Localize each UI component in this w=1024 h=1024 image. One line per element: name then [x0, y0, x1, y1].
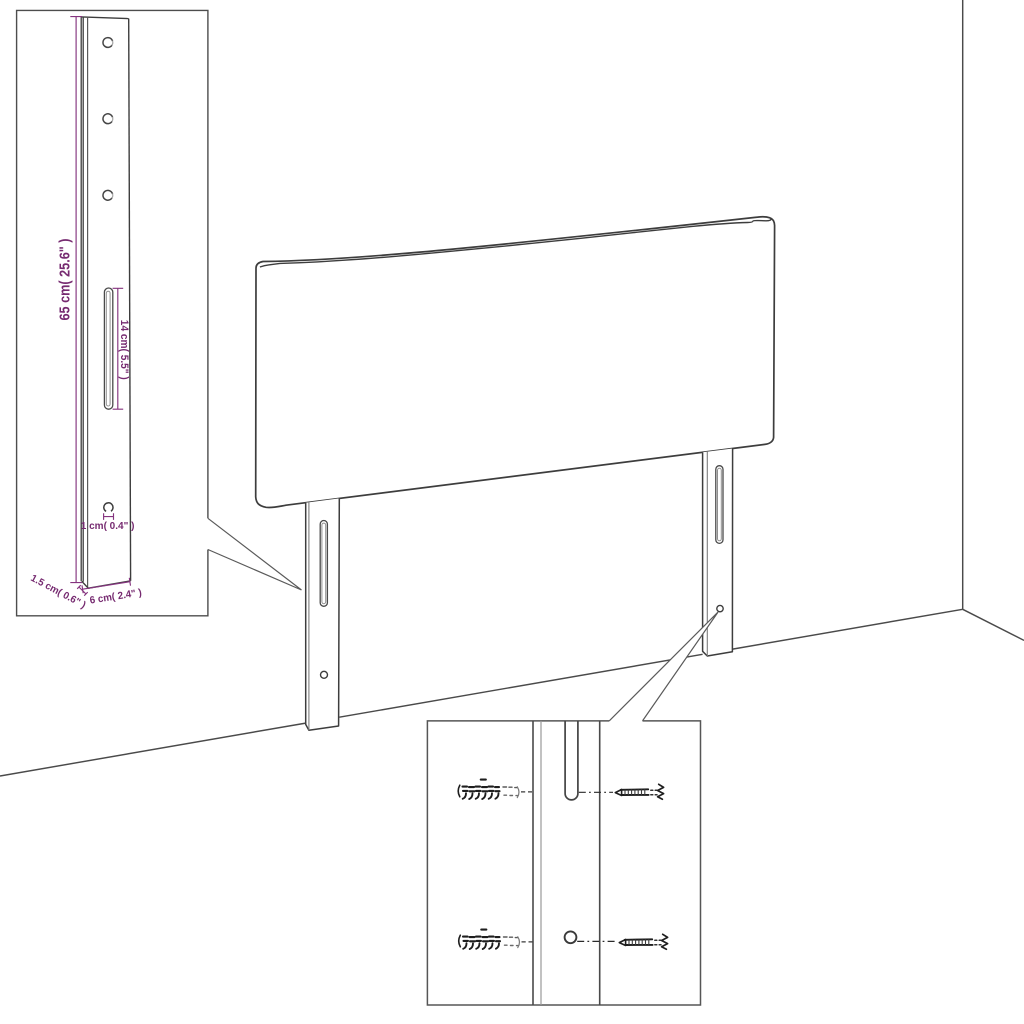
svg-text:14 cm( 5.5" ): 14 cm( 5.5" ) — [118, 320, 130, 380]
svg-text:1 cm( 0.4" ): 1 cm( 0.4" ) — [81, 521, 135, 532]
svg-text:65 cm( 25.6" ): 65 cm( 25.6" ) — [55, 238, 72, 320]
